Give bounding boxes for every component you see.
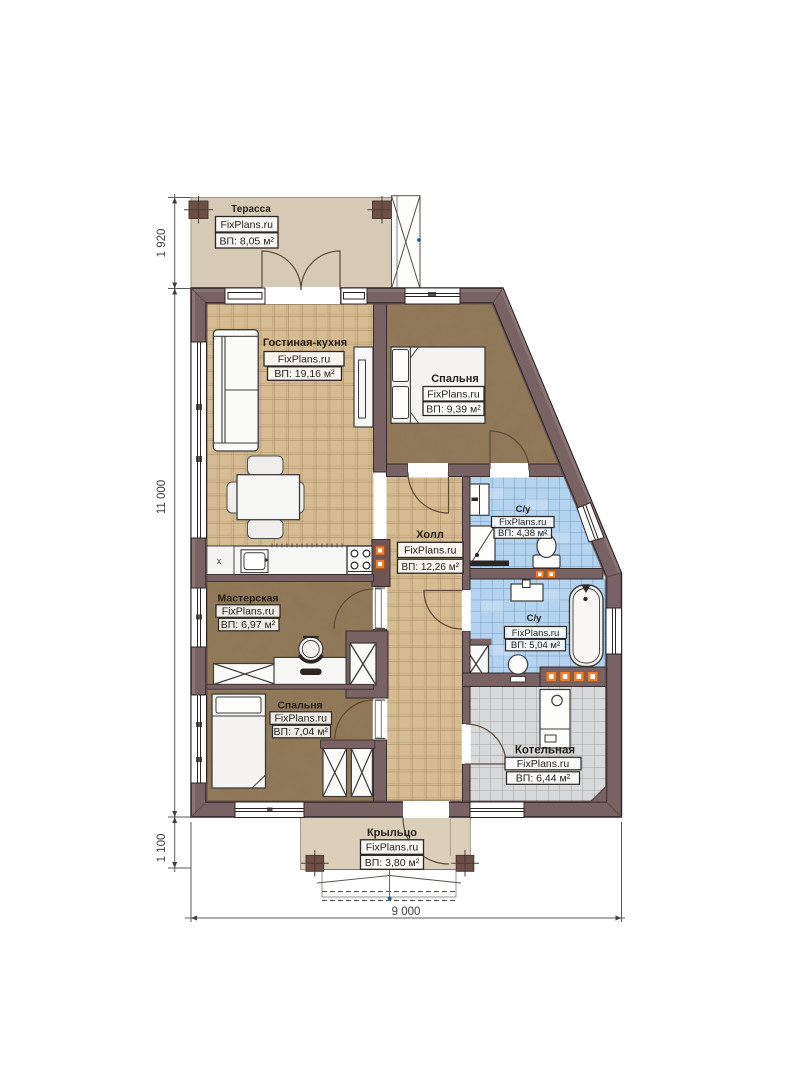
svg-text:FixPlans.ru: FixPlans.ru <box>278 353 331 365</box>
svg-text:ВП: 9,39 м²: ВП: 9,39 м² <box>426 403 481 415</box>
svg-text:x: x <box>217 556 222 566</box>
svg-text:ВП: 8,05 м²: ВП: 8,05 м² <box>219 235 274 247</box>
svg-text:1 100: 1 100 <box>156 834 168 863</box>
svg-text:ВП: 3,80 м²: ВП: 3,80 м² <box>365 857 420 869</box>
svg-text:FixPlans.ru: FixPlans.ru <box>404 545 457 557</box>
svg-text:Спальня: Спальня <box>431 373 479 385</box>
svg-text:FixPlans.ru: FixPlans.ru <box>274 713 327 725</box>
svg-text:Котельная: Котельная <box>515 745 575 757</box>
svg-text:Терасса: Терасса <box>231 204 271 215</box>
svg-text:FixPlans.ru: FixPlans.ru <box>517 758 570 770</box>
svg-text:ВП: 5,04 м²: ВП: 5,04 м² <box>511 640 560 651</box>
svg-text:FixPlans.ru: FixPlans.ru <box>499 517 547 528</box>
svg-text:С/у: С/у <box>527 613 543 624</box>
svg-text:9 000: 9 000 <box>392 906 421 918</box>
svg-text:FixPlans.ru: FixPlans.ru <box>366 842 419 854</box>
svg-text:ВП: 19,16 м²: ВП: 19,16 м² <box>274 368 335 380</box>
svg-text:Холл: Холл <box>416 529 444 541</box>
svg-text:Мастерская: Мастерская <box>217 593 278 605</box>
svg-text:С/у: С/у <box>516 504 532 515</box>
svg-text:11 000: 11 000 <box>156 480 168 514</box>
svg-text:ВП: 7,04 м²: ВП: 7,04 м² <box>273 726 328 738</box>
svg-text:Спальня: Спальня <box>277 700 322 712</box>
svg-text:ВП: 4,38 м²: ВП: 4,38 м² <box>498 528 547 539</box>
svg-text:FixPlans.ru: FixPlans.ru <box>222 606 275 618</box>
svg-text:FixPlans.ru: FixPlans.ru <box>512 628 560 639</box>
svg-text:FixPlans.ru: FixPlans.ru <box>220 219 273 231</box>
svg-text:ВП: 6,97 м²: ВП: 6,97 м² <box>221 619 276 631</box>
svg-text:Крыльцо: Крыльцо <box>367 827 417 839</box>
svg-text:Гостиная-кухня: Гостиная-кухня <box>263 337 347 349</box>
svg-text:FixPlans.ru: FixPlans.ru <box>427 389 480 401</box>
svg-text:ВП: 6,44 м²: ВП: 6,44 м² <box>516 773 571 785</box>
svg-text:1 920: 1 920 <box>156 229 168 258</box>
svg-text:ВП: 12,26 м²: ВП: 12,26 м² <box>401 562 459 573</box>
